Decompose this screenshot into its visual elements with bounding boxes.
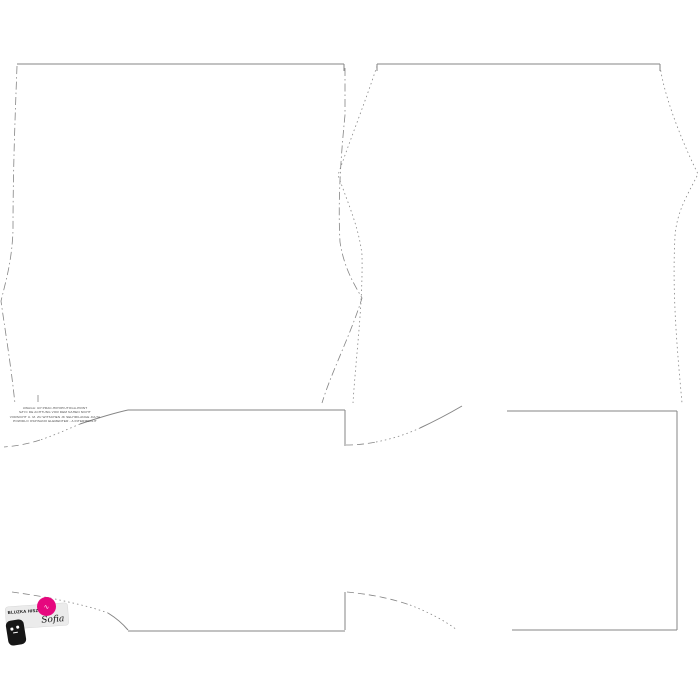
pattern-instructions-text: UWAGA: UP PRAC-HIPOPIUTOGA-PRINT SZYC DE… xyxy=(8,406,102,423)
mascot-icon xyxy=(5,619,27,647)
piece-a-left-edge xyxy=(1,66,17,404)
instruction-line: SZYC DE ACHTUNG VOR DEM NAHEN NICHT xyxy=(8,410,102,414)
pattern-drawing xyxy=(0,0,700,700)
pattern-sheet: UWAGA: UP PRAC-HIPOPIUTOGA-PRINT SZYC DE… xyxy=(0,0,700,700)
piece-c-left-curve-dash xyxy=(4,440,40,447)
piece-b-left-edge xyxy=(338,66,377,403)
piece-a-right-edge xyxy=(322,68,362,403)
badge-glyph: ∿ xyxy=(44,603,49,611)
mascot-eye xyxy=(10,627,13,630)
piece-d-neck-curve-solid xyxy=(420,406,462,428)
piece-b-right-edge xyxy=(660,66,698,403)
piece-g-curve-dash xyxy=(347,592,410,605)
piece-d-neck-curve-dot xyxy=(376,428,420,442)
instruction-line: POWIDLO OSPISANO ELEMENTER - A INTERMEDL… xyxy=(8,419,102,423)
piece-c-left-curve-dot xyxy=(40,424,80,440)
mascot-mouth xyxy=(13,632,18,634)
piece-d-neck-curve-dash xyxy=(346,442,376,445)
piece-g-curve-dot xyxy=(410,605,457,630)
brand-badge-icon: ∿ xyxy=(37,597,56,616)
pattern-brand-logo: BLUZKA HISZPANKA Sofia ∿ xyxy=(4,596,84,650)
mascot-eye xyxy=(16,626,19,629)
piece-f-left-curve-solid xyxy=(108,613,128,630)
